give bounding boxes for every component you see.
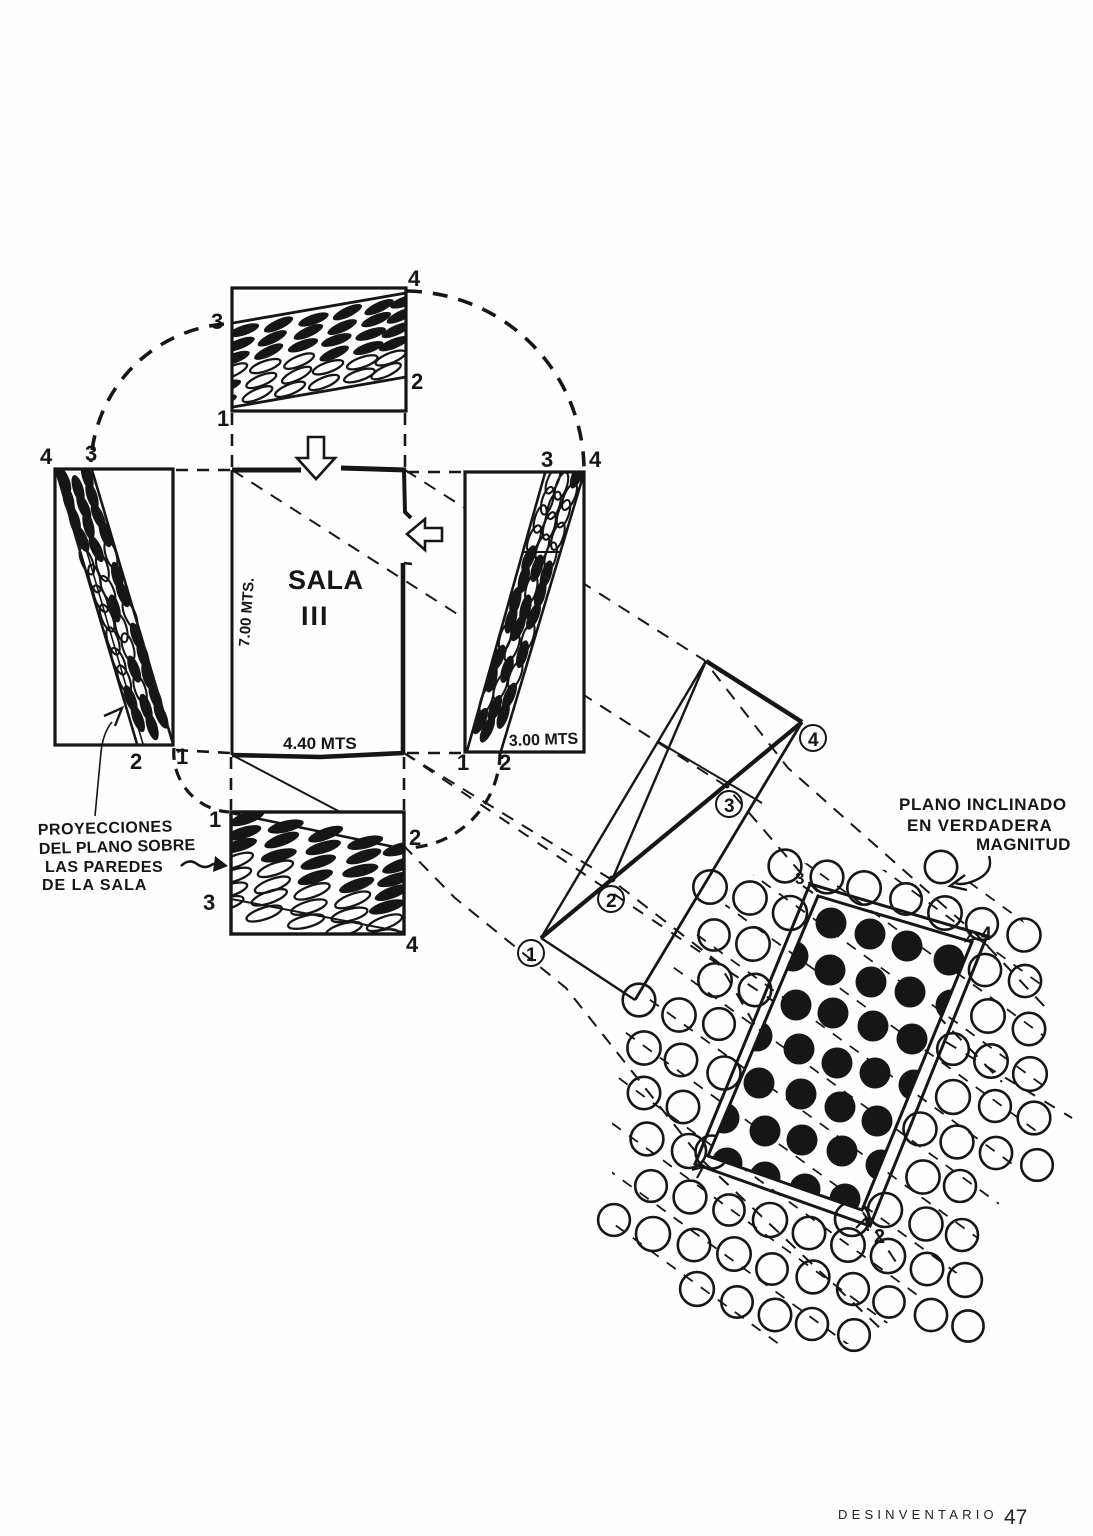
svg-text:2: 2 bbox=[130, 749, 142, 774]
svg-text:2: 2 bbox=[411, 369, 423, 394]
svg-text:47: 47 bbox=[1004, 1506, 1027, 1529]
svg-text:1: 1 bbox=[526, 945, 537, 966]
svg-text:PLANO INCLINADO: PLANO INCLINADO bbox=[899, 795, 1067, 814]
svg-text:3: 3 bbox=[795, 869, 804, 888]
svg-text:2: 2 bbox=[606, 891, 617, 912]
svg-text:EN VERDADERA: EN VERDADERA bbox=[907, 816, 1053, 835]
svg-text:4: 4 bbox=[981, 924, 992, 945]
svg-text:4: 4 bbox=[40, 444, 53, 469]
svg-text:3: 3 bbox=[85, 441, 97, 466]
svg-text:1: 1 bbox=[457, 750, 469, 775]
svg-text:DESINVENTARIO: DESINVENTARIO bbox=[838, 1507, 998, 1522]
svg-text:LAS PAREDES: LAS PAREDES bbox=[45, 859, 163, 876]
svg-text:4: 4 bbox=[406, 932, 419, 957]
svg-text:3: 3 bbox=[541, 447, 553, 472]
svg-text:3.00 MTS: 3.00 MTS bbox=[509, 731, 579, 750]
svg-text:DE LA SALA: DE LA SALA bbox=[42, 877, 147, 894]
svg-text:3: 3 bbox=[211, 309, 223, 334]
svg-text:DEL PLANO SOBRE: DEL PLANO SOBRE bbox=[39, 837, 196, 858]
svg-text:SALA: SALA bbox=[288, 565, 364, 595]
svg-text:2: 2 bbox=[499, 750, 511, 775]
svg-text:PROYECCIONES: PROYECCIONES bbox=[38, 818, 173, 839]
svg-text:1: 1 bbox=[217, 406, 229, 431]
svg-text:3: 3 bbox=[203, 890, 215, 915]
svg-text:3: 3 bbox=[724, 796, 735, 817]
svg-text:MAGNITUD: MAGNITUD bbox=[976, 835, 1071, 854]
svg-text:1: 1 bbox=[176, 744, 188, 769]
svg-text:4: 4 bbox=[408, 266, 421, 291]
svg-text:1: 1 bbox=[209, 807, 221, 832]
svg-text:2: 2 bbox=[409, 825, 421, 850]
svg-text:7.00 MTS.: 7.00 MTS. bbox=[236, 577, 258, 647]
svg-text:4: 4 bbox=[808, 730, 819, 751]
svg-text:2: 2 bbox=[874, 1226, 885, 1248]
svg-text:III: III bbox=[301, 601, 330, 631]
svg-text:4.40 MTS: 4.40 MTS bbox=[283, 734, 357, 753]
svg-text:4: 4 bbox=[589, 447, 602, 472]
